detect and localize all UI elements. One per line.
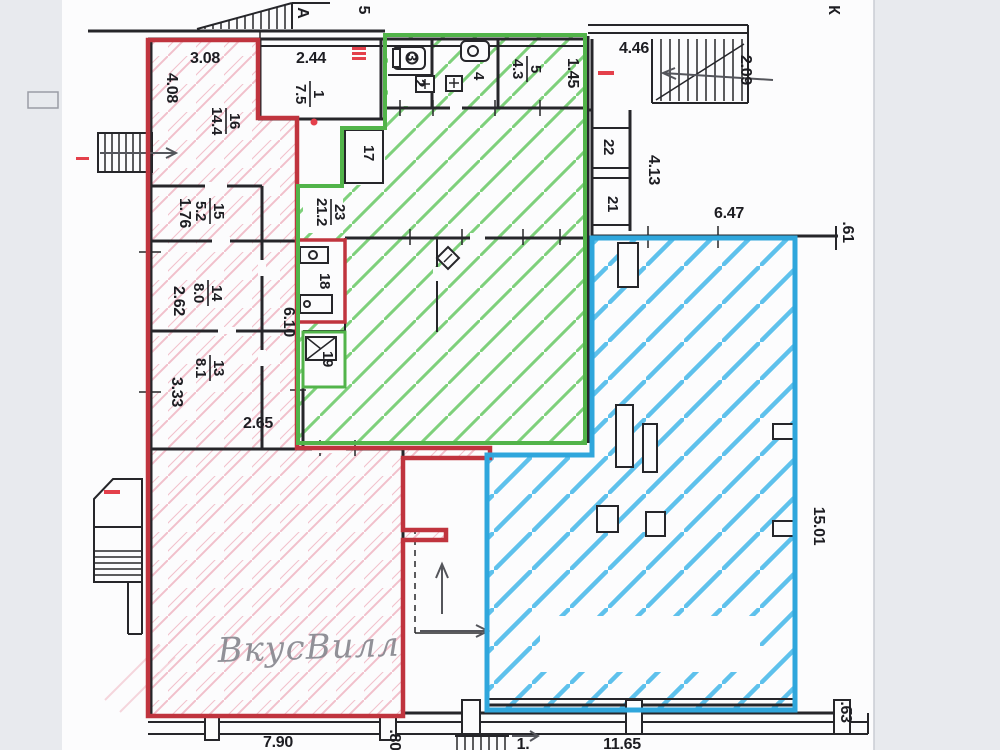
svg-text:16: 16: [226, 113, 243, 129]
orientation-arrows: [420, 564, 488, 637]
handwritten-note: ВкусВилл: [216, 625, 401, 671]
room-number-label: 17: [360, 145, 377, 161]
room-number-label: 3: [403, 53, 420, 61]
axis-letter: 5: [355, 6, 372, 15]
room-area-label: 17.5: [292, 81, 327, 107]
room-number-label: 18: [316, 273, 333, 289]
up-arrow: [436, 564, 448, 614]
svg-text:8.1: 8.1: [192, 358, 209, 378]
dimension-label: 1.: [517, 736, 530, 750]
axis-letter: А: [294, 7, 311, 19]
svg-text:14: 14: [208, 285, 225, 302]
erased-area: [540, 616, 760, 672]
dimension-label: .63: [837, 701, 854, 723]
svg-text:23: 23: [331, 204, 348, 220]
dimension-label: 4.46: [619, 40, 649, 57]
floor-plan-drawing: ВкусВилл 3.082.444.466.472.657.9011.651.…: [0, 0, 1000, 750]
dimension-label: 2.44: [296, 50, 326, 67]
dimension-label: 6.10: [280, 307, 297, 337]
scan-right-margin: [874, 0, 1000, 750]
dimension-label: 4.08: [163, 73, 180, 103]
svg-text:15: 15: [210, 203, 227, 219]
dimension-label: 2.62: [170, 286, 187, 316]
dimension-label: 3.08: [190, 50, 220, 67]
dimension-label: 2.65: [243, 415, 273, 432]
dimension-label: .80: [386, 729, 403, 750]
scanned-floor-plan-page: ВкусВилл 3.082.444.466.472.657.9011.651.…: [0, 0, 1000, 750]
svg-text:13: 13: [210, 360, 227, 376]
dimension-label: 15.01: [810, 507, 827, 546]
dimension-label: 3.33: [168, 377, 185, 407]
dimension-label: 2.09: [737, 55, 754, 85]
dimension-label: .61: [839, 221, 856, 243]
dimension-label: 4.13: [645, 155, 662, 185]
staircase-left-lower: [94, 479, 142, 634]
dimension-label: 11.65: [603, 736, 641, 750]
room-number-label: 19: [319, 351, 336, 367]
dimension-label: 1.45: [564, 58, 581, 88]
scan-left-margin: [0, 0, 62, 750]
dimension-label: 6.47: [714, 205, 744, 222]
dimension-label: 1.76: [176, 198, 193, 228]
svg-text:8.0: 8.0: [190, 283, 207, 303]
axis-letter: К: [825, 5, 842, 15]
svg-text:1: 1: [310, 90, 327, 98]
right-arrow: [420, 625, 488, 637]
svg-text:21.2: 21.2: [313, 198, 330, 226]
room-number-label: 4: [470, 72, 487, 81]
svg-text:14.4: 14.4: [208, 107, 225, 136]
red-dot: [311, 119, 318, 126]
svg-text:5.2: 5.2: [192, 201, 209, 221]
svg-text:4.3: 4.3: [509, 59, 526, 79]
room-number-label: 21: [604, 196, 621, 212]
room-number-label: 2: [411, 79, 428, 87]
dimension-label: 7.90: [263, 734, 293, 750]
svg-text:5: 5: [527, 65, 544, 73]
room-number-label: 22: [600, 139, 617, 155]
svg-text:7.5: 7.5: [292, 84, 309, 104]
